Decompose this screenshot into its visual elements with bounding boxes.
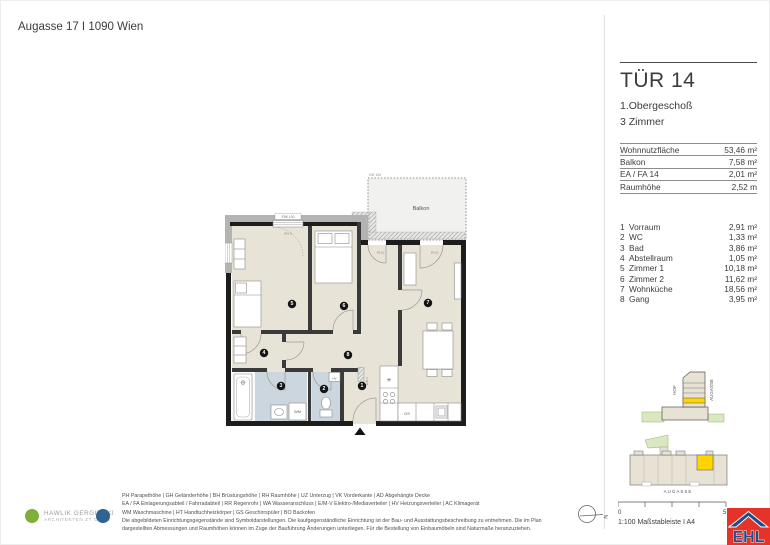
metrics-table: Wohnnutzfläche53,46 m² Balkon7,58 m² EA … — [620, 143, 757, 194]
room-area: 2,91 m² — [729, 222, 757, 232]
north-arrow: N — [574, 502, 610, 528]
room-area: 3,86 m² — [729, 243, 757, 253]
unit-floor: 1.Obergeschoß — [620, 100, 692, 112]
room-area: 1,33 m² — [729, 232, 757, 242]
room-row: 8Gang3,95 m² — [620, 294, 757, 304]
room-area: 10,18 m² — [724, 263, 757, 273]
sideboard — [455, 263, 462, 299]
chair — [442, 370, 452, 377]
wardrobe — [234, 239, 245, 269]
room-row: 7Wohnküche18,56 m² — [620, 284, 757, 294]
room-row: 6Zimmer 211,62 m² — [620, 273, 757, 283]
svg-text:4: 4 — [263, 350, 266, 356]
section-base — [662, 407, 708, 420]
storage-shelf — [234, 337, 246, 363]
svg-text:1: 1 — [361, 383, 364, 389]
room-name: WC — [629, 232, 729, 242]
page-title: Augasse 17 I 1090 Wien — [18, 21, 143, 33]
metric-label: Raumhöhe — [620, 182, 661, 192]
parapet-label: PH 0 — [284, 232, 291, 236]
legend-line: PH Parapethöhe | GH Geländerhöhe | BH Br… — [122, 492, 542, 500]
room-name: Bad — [629, 243, 729, 253]
svg-text:3: 3 — [280, 383, 283, 389]
ehl-wordmark: EHL — [733, 529, 765, 545]
metric-label: Wohnnutzfläche — [620, 145, 679, 155]
ehl-logo-graphic: ® EHL — [727, 508, 770, 545]
sofa — [404, 253, 416, 285]
window-left — [225, 243, 232, 263]
hof-label: HOF — [672, 385, 677, 395]
metric-row: EA / FA 142,01 m² — [620, 168, 757, 180]
site-plan: AUGASSE — [618, 430, 760, 496]
scale-start-label: 0 — [618, 510, 622, 515]
svg-text:2: 2 — [323, 386, 326, 392]
svg-text:8: 8 — [347, 352, 350, 358]
room-area: 3,95 m² — [729, 294, 757, 304]
badge-vorraum: 1 — [358, 382, 366, 390]
green-wedge — [645, 435, 668, 448]
toilet — [320, 410, 332, 417]
green-area — [642, 412, 664, 422]
vertical-divider — [604, 15, 605, 529]
sink-symbol: ✳ — [386, 377, 391, 384]
chair — [442, 323, 452, 330]
badge-wohnkueche: 7 — [424, 299, 432, 307]
badge-abstellraum: 4 — [260, 349, 268, 357]
room-no: 4 — [620, 253, 629, 263]
room-no: 1 — [620, 222, 629, 232]
badge-wc: 2 — [320, 385, 328, 393]
legend-line: WM Waschmaschine | HT Handtuchheizkörper… — [122, 509, 542, 517]
room-row: 2WC1,33 m² — [620, 232, 757, 242]
railing-height-label: GH 100 — [369, 173, 381, 177]
house-roof-icon — [729, 512, 768, 528]
room-no: 3 — [620, 243, 629, 253]
washbasin — [271, 405, 287, 419]
metric-value: 2,52 m — [732, 182, 757, 192]
room-name: Zimmer 2 — [629, 274, 725, 284]
room-area: 11,62 m² — [725, 274, 757, 284]
unit-room-count: 3 Zimmer — [620, 116, 664, 128]
metric-row: Wohnnutzfläche53,46 m² — [620, 143, 757, 155]
badge-zimmer1: 5 — [288, 300, 296, 308]
legend-line: dargestellten Abmessungen und Raumhöhen … — [122, 525, 542, 533]
pillow — [335, 234, 349, 244]
augasse-bottom-label: AUGASSE — [664, 489, 693, 494]
kitchen-unit — [380, 366, 398, 421]
emv-cabinet — [358, 368, 364, 382]
legend-line: Die abgebildeten Einrichtungsgegenstände… — [122, 517, 542, 525]
balcony-label: Balkon — [413, 206, 430, 212]
highlighted-unit — [697, 455, 713, 470]
balcony — [352, 178, 466, 240]
architect-logo-mark-blue — [96, 509, 110, 523]
unit-title: TÜR 14 — [620, 69, 695, 93]
panel-top-rule — [620, 62, 757, 63]
metric-value: 2,01 m² — [729, 169, 757, 179]
room-row: 3Bad3,86 m² — [620, 243, 757, 253]
room-area: 18,56 m² — [724, 284, 757, 294]
entrance-marker — [355, 428, 366, 436]
highlighted-floor — [683, 398, 705, 403]
room-name: Gang — [629, 294, 729, 304]
legend-line: EA / FA Einlagerungsabteil / Fahrradabte… — [122, 500, 542, 508]
green-area — [708, 414, 724, 422]
badge-gang: 8 — [344, 351, 352, 359]
badge-bad: 3 — [277, 382, 285, 390]
room-no: 6 — [620, 274, 629, 284]
scale-caption: 1:100 Maßstableiste I A4 — [618, 519, 695, 526]
floor-plan: Balkon GH 100 FBK 100 PH 0 PH 0 PH 0 WM … — [225, 155, 470, 440]
chair — [427, 370, 437, 377]
parapet-label: PH 0 — [431, 251, 438, 255]
augasse-side-label: AUGASSE — [709, 379, 714, 401]
building-section-diagram: HOF AUGASSE — [618, 360, 760, 428]
room-name: Vorraum — [629, 222, 729, 232]
washing-machine-label: WM — [294, 410, 301, 414]
pillow — [318, 234, 332, 244]
room-row: 4Abstellraum1,05 m² — [620, 253, 757, 263]
svg-text:5: 5 — [291, 301, 294, 307]
badge-zimmer2: 6 — [340, 302, 348, 310]
room-row: 1Vorraum2,91 m² — [620, 222, 757, 232]
parapet-label: PH 0 — [377, 251, 384, 255]
ehl-logo: ® EHL — [727, 508, 770, 545]
room-name: Abstellraum — [629, 253, 729, 263]
room-list: 1Vorraum2,91 m² 2WC1,33 m² 3Bad3,86 m² 4… — [620, 222, 757, 304]
architect-logo-mark-green — [25, 509, 39, 523]
metric-row: Raumhöhe2,52 m — [620, 180, 757, 192]
room-name: Wohnküche — [629, 284, 724, 294]
window-sill-label: FBK 100 — [282, 215, 295, 219]
room-name: Zimmer 1 — [629, 263, 724, 273]
metric-value: 53,46 m² — [724, 145, 757, 155]
scale-bar: 0 5 — [618, 499, 733, 515]
room-no: 5 — [620, 263, 629, 273]
metric-label: Balkon — [620, 157, 645, 167]
dining-table — [423, 331, 453, 369]
north-letter: N — [602, 514, 608, 519]
hv-label: HV — [332, 377, 336, 381]
metric-row: Balkon7,58 m² — [620, 155, 757, 167]
room-row: 5Zimmer 110,18 m² — [620, 263, 757, 273]
metric-label: EA / FA 14 — [620, 169, 659, 179]
chair — [427, 323, 437, 330]
svg-text:7: 7 — [427, 300, 430, 306]
room-no: 2 — [620, 232, 629, 242]
legend-block: PH Parapethöhe | GH Geländerhöhe | BH Br… — [122, 492, 542, 533]
metric-value: 7,58 m² — [729, 157, 757, 167]
svg-text:6: 6 — [343, 303, 346, 309]
floorplan-document-page: Augasse 17 I 1090 Wien — [0, 0, 770, 545]
room-no: 7 — [620, 284, 629, 294]
room-area: 1,05 m² — [729, 253, 757, 263]
dishwasher-label: GS — [404, 412, 410, 416]
room-no: 8 — [620, 294, 629, 304]
